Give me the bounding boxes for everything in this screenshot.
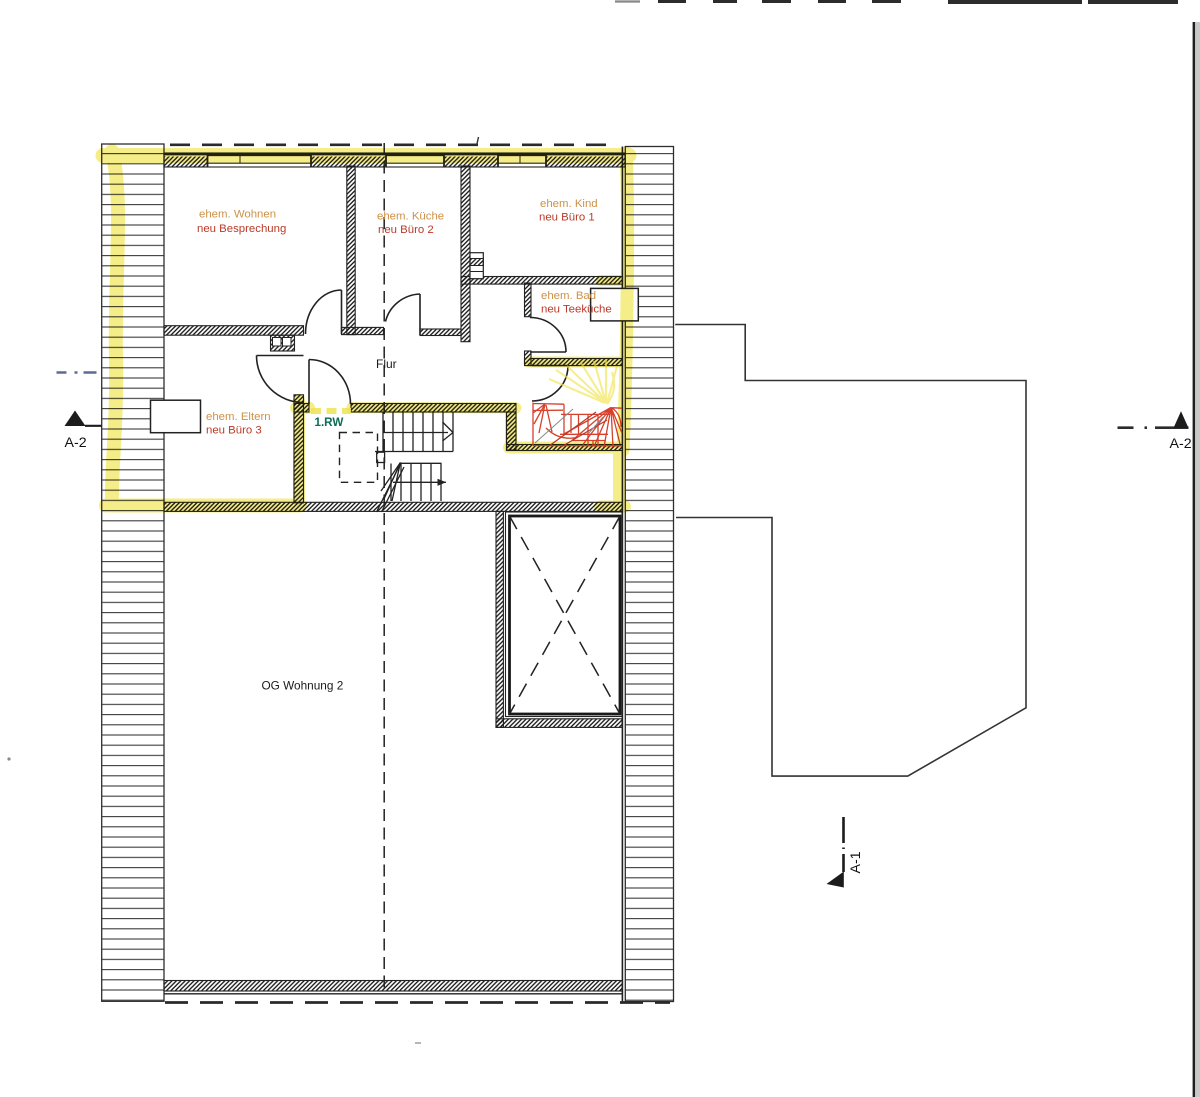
svg-text:ehem. Kind: ehem. Kind bbox=[540, 198, 598, 210]
svg-text:neu Büro 2: neu Büro 2 bbox=[378, 224, 434, 236]
svg-text:ehem. Küche: ehem. Küche bbox=[377, 210, 444, 222]
svg-text:ehem. Bad: ehem. Bad bbox=[541, 290, 596, 302]
svg-text:ehem. Eltern: ehem. Eltern bbox=[206, 411, 271, 423]
svg-text:neu Teeküche: neu Teeküche bbox=[541, 303, 612, 315]
svg-text:A-1: A-1 bbox=[848, 851, 864, 873]
svg-text:neu Besprechung: neu Besprechung bbox=[197, 223, 286, 235]
svg-text:A-2: A-2 bbox=[1170, 436, 1192, 452]
svg-text:A-2: A-2 bbox=[65, 435, 87, 451]
svg-text:Flur: Flur bbox=[376, 357, 397, 371]
svg-text:OG Wohnung 2: OG Wohnung 2 bbox=[262, 678, 344, 692]
svg-text:1.RW: 1.RW bbox=[315, 416, 344, 429]
svg-text:neu Büro 3: neu Büro 3 bbox=[206, 424, 262, 436]
svg-text:neu Büro 1: neu Büro 1 bbox=[539, 212, 595, 224]
svg-text:ehem. Wohnen: ehem. Wohnen bbox=[199, 209, 276, 221]
